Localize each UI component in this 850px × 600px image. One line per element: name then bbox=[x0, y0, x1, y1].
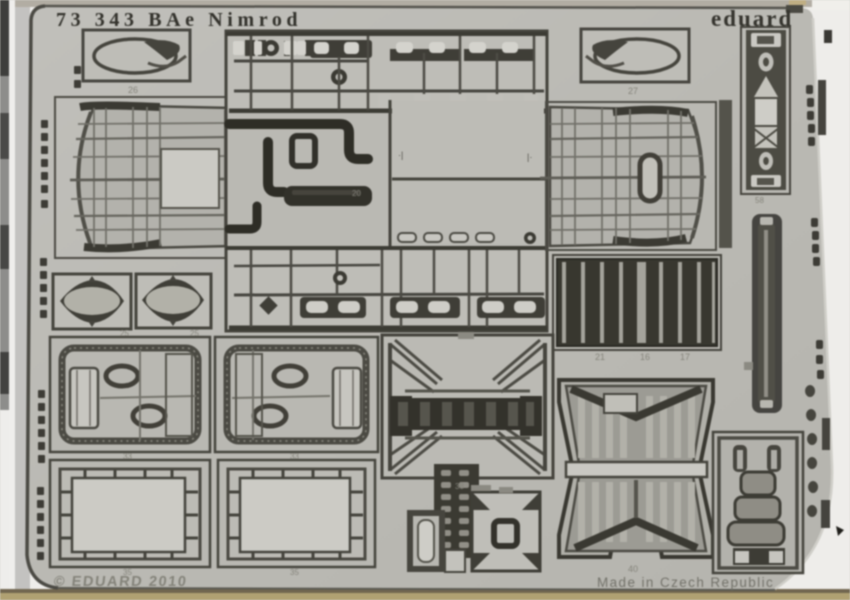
svg-text:20: 20 bbox=[352, 189, 361, 198]
svg-text:40: 40 bbox=[628, 564, 638, 574]
svg-text:58: 58 bbox=[755, 196, 764, 205]
svg-text:25: 25 bbox=[120, 329, 129, 338]
svg-text:35: 35 bbox=[290, 568, 299, 577]
svg-text:eduard: eduard bbox=[711, 6, 793, 31]
svg-text:17: 17 bbox=[680, 352, 690, 362]
svg-text:·|: ·| bbox=[398, 150, 403, 160]
svg-text:|·: |· bbox=[527, 152, 532, 162]
svg-text:33: 33 bbox=[290, 452, 299, 461]
svg-text:25: 25 bbox=[190, 329, 199, 338]
svg-text:27: 27 bbox=[628, 86, 638, 96]
svg-text:Made in Czech Republic: Made in Czech Republic bbox=[597, 575, 774, 590]
svg-text:33: 33 bbox=[123, 452, 132, 461]
svg-text:16: 16 bbox=[640, 352, 650, 362]
svg-text:21: 21 bbox=[595, 352, 605, 362]
svg-text:73 343 BAe Nimrod: 73 343 BAe Nimrod bbox=[56, 9, 302, 31]
svg-text:38: 38 bbox=[455, 482, 464, 491]
svg-text:26: 26 bbox=[128, 85, 138, 95]
svg-text:© EDUARD 2010: © EDUARD 2010 bbox=[53, 574, 188, 590]
